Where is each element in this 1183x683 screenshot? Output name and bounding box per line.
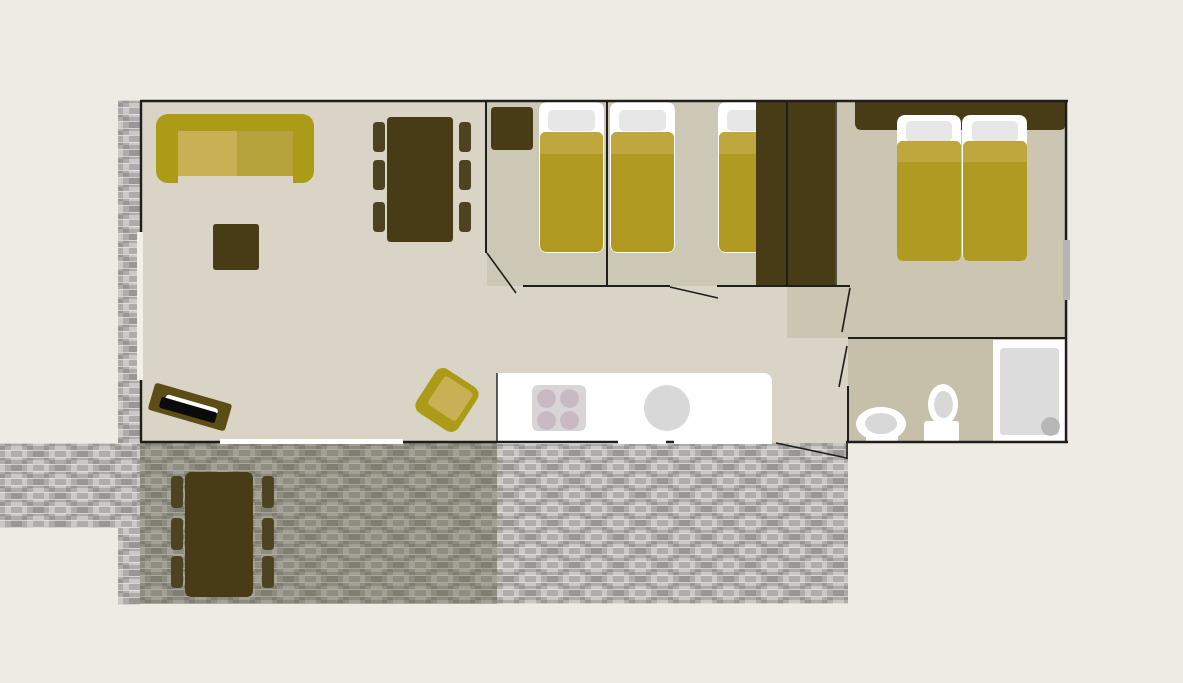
washbasin-inner — [865, 413, 897, 434]
picnic-table — [185, 472, 253, 597]
kitchen-sink — [644, 385, 690, 431]
double-bed-mattress-left — [897, 115, 961, 261]
hob-burner — [560, 389, 579, 408]
single-bed-1 — [539, 102, 604, 253]
coffee-table — [213, 224, 259, 270]
dining-chair — [459, 202, 471, 232]
outdoor-chair — [262, 476, 274, 508]
sofa-cushion-left — [178, 131, 237, 176]
window-left-wall — [137, 232, 143, 380]
outdoor-chair — [262, 518, 274, 550]
sofa — [156, 114, 314, 183]
bed-blanket-fold — [611, 132, 674, 154]
toilet-bowl-inner — [934, 391, 953, 418]
dining-chair — [373, 202, 385, 232]
patio-opening-threshold — [220, 439, 403, 444]
outdoor-chair — [171, 556, 183, 588]
dining-chair — [373, 160, 385, 190]
bed-pillow — [906, 121, 952, 142]
bed-pillow — [619, 110, 666, 131]
hob-burner — [537, 389, 556, 408]
bed-pillow — [548, 110, 595, 131]
sofa-front-gap — [178, 176, 293, 183]
hob-burner — [537, 411, 556, 430]
armchair-seat — [427, 375, 474, 422]
double-bed-mattress-right — [962, 115, 1027, 261]
hob — [532, 385, 586, 431]
outdoor-chair — [171, 518, 183, 550]
bed-blanket-fold — [963, 141, 1027, 162]
bed-blanket-fold — [540, 132, 603, 154]
bedside-cabinet — [491, 107, 533, 150]
wardrobe-bedroom-2 — [756, 100, 787, 286]
dining-table — [387, 117, 453, 242]
outdoor-chair — [171, 476, 183, 508]
bed-pillow — [972, 121, 1018, 142]
dining-chair — [373, 122, 385, 152]
wardrobe-bedroom-3 — [788, 100, 835, 286]
single-bed-2 — [610, 102, 675, 253]
sofa-cushion-right — [237, 131, 293, 176]
dining-chair — [459, 160, 471, 190]
floor-plan-page: { "diagram": { "type": "floor-plan", "su… — [0, 0, 1183, 683]
garden-path-horizontal — [0, 443, 140, 528]
hob-burner — [560, 411, 579, 430]
outdoor-chair — [262, 556, 274, 588]
bed-blanket-fold — [897, 141, 961, 162]
window-right-wall — [1063, 240, 1070, 300]
dining-chair — [459, 122, 471, 152]
shower-drain — [1041, 417, 1060, 436]
